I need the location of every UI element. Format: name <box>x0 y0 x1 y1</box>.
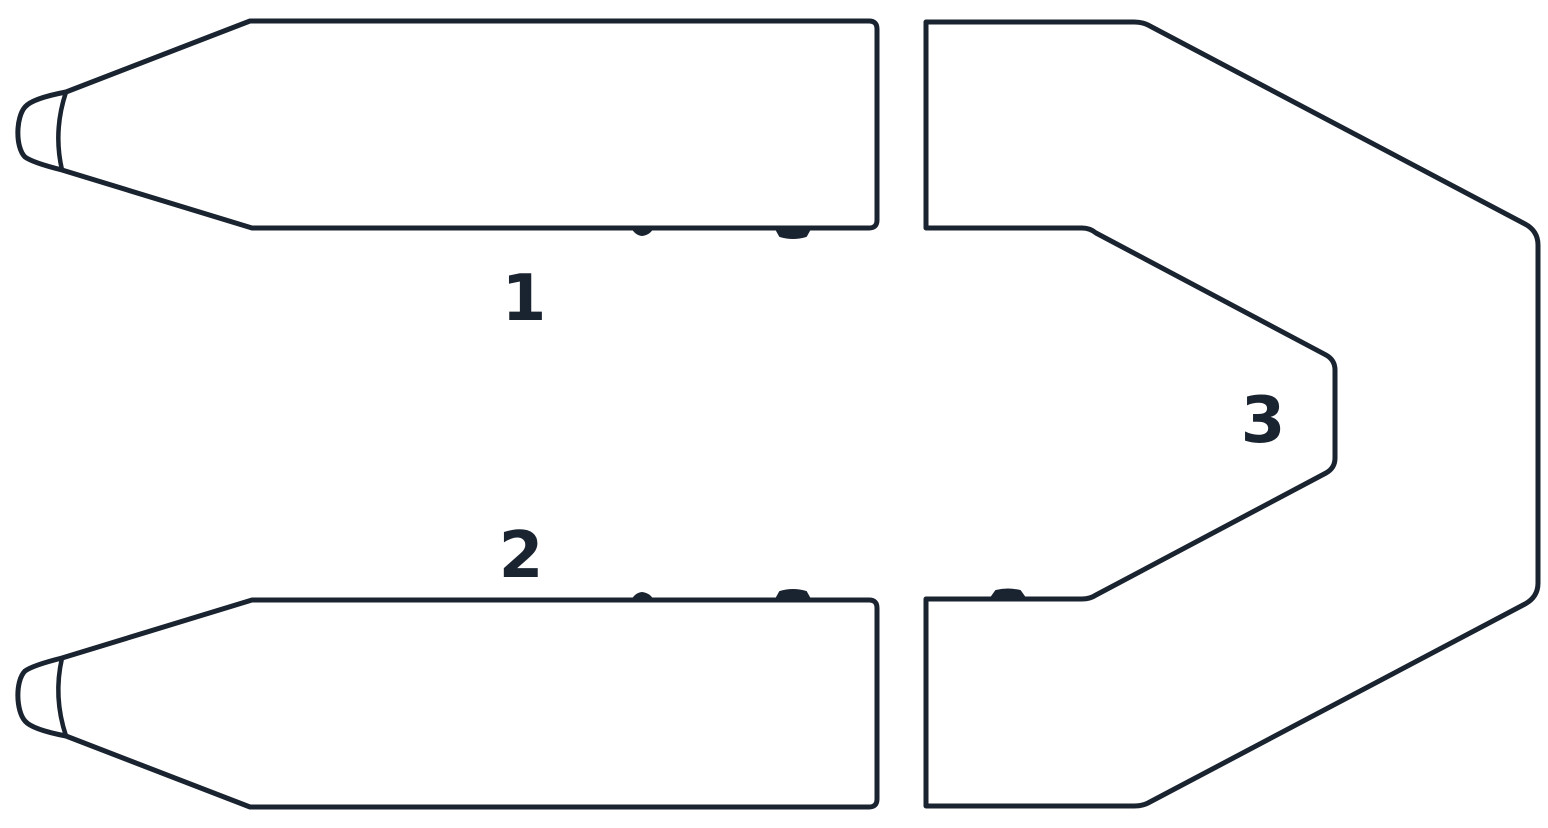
part-1-tube-outline <box>18 21 877 228</box>
part-1-large-fitting-icon <box>775 227 811 238</box>
part-2-label: 2 <box>499 519 544 593</box>
inflatable-boat-tube-parts-diagram: 1 2 3 <box>0 0 1548 828</box>
part-2-large-fitting-icon <box>775 590 811 601</box>
part-3-fitting-icon <box>991 590 1025 599</box>
part-1-label: 1 <box>502 262 547 336</box>
part-2-tube-outline <box>18 600 877 807</box>
part-3-stern-tube-outline <box>926 22 1538 806</box>
diagram-canvas: 1 2 3 <box>0 0 1548 828</box>
part-2-small-valve-icon <box>632 593 653 601</box>
part-1-small-valve-icon <box>632 227 653 235</box>
part-3-label: 3 <box>1241 384 1286 458</box>
